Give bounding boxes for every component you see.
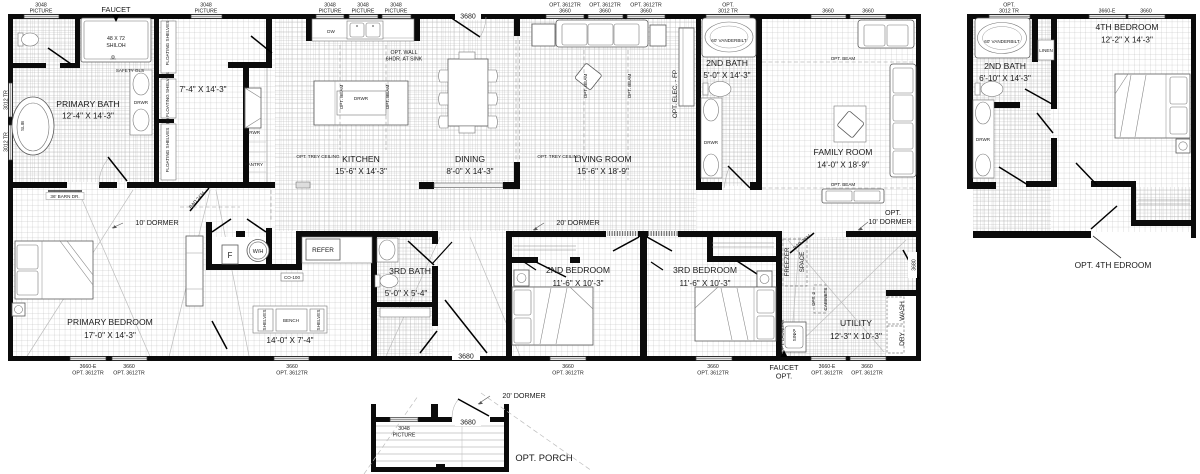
- svg-text:3660: 3660: [559, 9, 571, 15]
- svg-text:2ND BATH: 2ND BATH: [984, 61, 1026, 71]
- svg-text:3660: 3660: [707, 364, 719, 370]
- svg-text:60' VANDERBILT: 60' VANDERBILT: [984, 39, 1020, 44]
- svg-text:3660-E: 3660-E: [1099, 9, 1116, 15]
- svg-text:48 X 72: 48 X 72: [107, 36, 125, 42]
- svg-text:3048: 3048: [398, 426, 410, 432]
- svg-text:REFER: REFER: [312, 247, 334, 254]
- svg-text:LINEN: LINEN: [1039, 48, 1053, 53]
- svg-text:FAUCET: FAUCET: [101, 5, 131, 14]
- svg-text:5'-0" X 14'-3": 5'-0" X 14'-3": [703, 71, 750, 80]
- svg-text:3680: 3680: [912, 259, 918, 271]
- svg-text:10' DORMER: 10' DORMER: [868, 217, 911, 226]
- svg-text:PICTURE: PICTURE: [393, 433, 416, 439]
- svg-text:17'-0" X 14'-3": 17'-0" X 14'-3": [84, 331, 136, 340]
- svg-text:3660-E: 3660-E: [80, 364, 97, 370]
- svg-text:FLOATING SHELVES: FLOATING SHELVES: [165, 128, 170, 173]
- svg-text:36' BARN DR.: 36' BARN DR.: [50, 194, 79, 199]
- svg-text:20' DORMER: 20' DORMER: [502, 391, 545, 400]
- svg-text:OPT. ELEC. - FP: OPT. ELEC. - FP: [672, 70, 679, 118]
- svg-text:OPT.: OPT.: [885, 208, 901, 217]
- svg-text:3012 TR: 3012 TR: [4, 132, 10, 152]
- svg-text:DRWR: DRWR: [976, 137, 991, 142]
- svg-text:20' DORMER: 20' DORMER: [556, 218, 599, 227]
- svg-text:DRWR: DRWR: [704, 140, 719, 145]
- svg-text:3012 TR: 3012 TR: [718, 9, 738, 15]
- svg-text:12'-2" X 14'-3": 12'-2" X 14'-3": [1101, 36, 1153, 45]
- svg-text:PICTURE: PICTURE: [195, 9, 218, 15]
- svg-text:2ND BATH: 2ND BATH: [706, 58, 748, 68]
- svg-text:6HDR. AT SINK: 6HDR. AT SINK: [386, 57, 423, 63]
- svg-text:PRIMARY BATH: PRIMARY BATH: [56, 99, 120, 109]
- svg-text:3660-E: 3660-E: [819, 364, 836, 370]
- svg-text:OPT. 3612TR: OPT. 3612TR: [552, 371, 584, 377]
- svg-text:PICTURE: PICTURE: [352, 9, 375, 15]
- svg-text:3RD BATH: 3RD BATH: [389, 266, 431, 276]
- svg-text:WASH: WASH: [899, 301, 906, 321]
- svg-text:3660: 3660: [599, 9, 611, 15]
- svg-text:DRWR: DRWR: [354, 96, 369, 101]
- svg-text:F: F: [228, 251, 233, 260]
- svg-text:CABINETS: CABINETS: [823, 288, 828, 311]
- svg-text:15'-6" X 18'-9": 15'-6" X 18'-9": [577, 167, 629, 176]
- svg-text:3660: 3660: [862, 9, 874, 15]
- svg-text:FLOATING SHELVES: FLOATING SHELVES: [165, 21, 170, 66]
- svg-text:60' VANDERBILT: 60' VANDERBILT: [711, 38, 747, 43]
- svg-text:OPT. BEAM: OPT. BEAM: [831, 56, 856, 61]
- svg-text:FAMILY ROOM: FAMILY ROOM: [814, 147, 873, 157]
- svg-text:3660: 3660: [822, 9, 834, 15]
- svg-text:DRY: DRY: [899, 332, 906, 346]
- svg-text:DW: DW: [327, 29, 335, 34]
- svg-text:PANTRY: PANTRY: [245, 162, 263, 167]
- svg-text:PICTURE: PICTURE: [385, 9, 408, 15]
- svg-text:12'-4" X 14'-3": 12'-4" X 14'-3": [62, 112, 114, 121]
- svg-text:OPT. BEAM: OPT. BEAM: [339, 85, 344, 110]
- svg-text:OPT. LAUNDRY: OPT. LAUNDRY: [780, 319, 785, 352]
- svg-text:OPT. BEAM: OPT. BEAM: [831, 182, 856, 187]
- svg-text:(4) FLOATING SHELVES: (4) FLOATING SHELVES: [165, 72, 170, 124]
- svg-text:PRIMARY BEDROOM: PRIMARY BEDROOM: [67, 317, 153, 327]
- svg-text:SAFETY GLS: SAFETY GLS: [116, 68, 144, 73]
- svg-text:SINK: SINK: [792, 330, 797, 342]
- svg-text:3660: 3660: [640, 9, 652, 15]
- svg-text:12'-3" X 10'-3": 12'-3" X 10'-3": [830, 332, 882, 341]
- svg-text:OPT.: OPT.: [776, 372, 792, 381]
- svg-text:SHELVES: SHELVES: [316, 310, 321, 331]
- svg-text:OPT. 3612TR: OPT. 3612TR: [72, 371, 104, 377]
- svg-text:3660: 3660: [861, 364, 873, 370]
- svg-text:SPACE: SPACE: [799, 252, 806, 273]
- svg-text:OPT. BEAM: OPT. BEAM: [583, 74, 588, 99]
- svg-text:OPT. 3612TR: OPT. 3612TR: [113, 371, 145, 377]
- svg-text:11'-6" X 10'-3": 11'-6" X 10'-3": [679, 279, 730, 288]
- svg-text:3012 TR: 3012 TR: [999, 9, 1019, 15]
- svg-text:PICTURE: PICTURE: [30, 9, 53, 15]
- svg-text:SHELVES: SHELVES: [262, 310, 267, 331]
- svg-text:OPT. 4TH EDROOM: OPT. 4TH EDROOM: [1075, 260, 1152, 270]
- svg-text:KITCHEN: KITCHEN: [342, 154, 380, 164]
- svg-text:CO-100: CO-100: [284, 275, 301, 280]
- svg-text:OPT. BEAM: OPT. BEAM: [627, 74, 632, 99]
- svg-text:OPT. 2: OPT. 2: [811, 292, 816, 306]
- svg-text:OPT. 3612TR: OPT. 3612TR: [811, 371, 843, 377]
- svg-text:OPT. PORCH: OPT. PORCH: [515, 452, 572, 463]
- svg-text:OPT. 3612TR: OPT. 3612TR: [851, 371, 883, 377]
- svg-text:7'-4" X 14'-3": 7'-4" X 14'-3": [179, 85, 226, 94]
- svg-text:OPT. WALL: OPT. WALL: [391, 50, 418, 56]
- svg-text:3660: 3660: [286, 364, 298, 370]
- svg-text:3680: 3680: [460, 14, 476, 21]
- svg-text:5'-0" X 5'-4": 5'-0" X 5'-4": [385, 289, 428, 298]
- svg-text:SLIB: SLIB: [20, 121, 25, 131]
- svg-text:OPT. 3612TR: OPT. 3612TR: [697, 371, 729, 377]
- svg-text:OPT. TREY CEILING: OPT. TREY CEILING: [296, 154, 340, 159]
- svg-text:UTILITY: UTILITY: [840, 318, 872, 328]
- svg-text:OPT. BEAM: OPT. BEAM: [385, 85, 390, 110]
- svg-text:3680: 3680: [458, 354, 474, 361]
- svg-text:3660: 3660: [123, 364, 135, 370]
- svg-text:6'-10" X 14'-3": 6'-10" X 14'-3": [979, 74, 1031, 83]
- svg-text:14'-0" X 18'-9": 14'-0" X 18'-9": [817, 161, 869, 170]
- svg-text:11'-6" X 10'-3": 11'-6" X 10'-3": [552, 279, 603, 288]
- svg-text:4TH BEDROOM: 4TH BEDROOM: [1095, 22, 1158, 32]
- svg-text:15'-6" X 14'-3": 15'-6" X 14'-3": [335, 167, 387, 176]
- svg-text:8'-0" X 14'-3": 8'-0" X 14'-3": [446, 167, 493, 176]
- svg-text:3012 TR: 3012 TR: [4, 90, 10, 110]
- svg-text:2ND BEDROOM: 2ND BEDROOM: [546, 265, 610, 275]
- svg-text:DRWR: DRWR: [134, 100, 149, 105]
- svg-text:LIVING ROOM: LIVING ROOM: [574, 154, 631, 164]
- svg-text:OPT. 3612TR: OPT. 3612TR: [276, 371, 308, 377]
- svg-text:W/H: W/H: [253, 249, 264, 255]
- svg-text:3660: 3660: [1140, 9, 1152, 15]
- svg-text:PICTURE: PICTURE: [319, 9, 342, 15]
- svg-text:10' DORMER: 10' DORMER: [135, 218, 178, 227]
- svg-text:DRWR: DRWR: [246, 130, 261, 135]
- svg-text:3RD BEDROOM: 3RD BEDROOM: [673, 265, 737, 275]
- svg-text:BENCH: BENCH: [283, 318, 299, 323]
- svg-text:SHILOH: SHILOH: [106, 43, 126, 49]
- svg-text:DINING: DINING: [455, 154, 485, 164]
- svg-text:3660: 3660: [562, 364, 574, 370]
- svg-text:3680: 3680: [460, 420, 476, 427]
- svg-text:14'-0" X 7'-4": 14'-0" X 7'-4": [266, 336, 313, 345]
- svg-text:FREEZER: FREEZER: [784, 247, 791, 276]
